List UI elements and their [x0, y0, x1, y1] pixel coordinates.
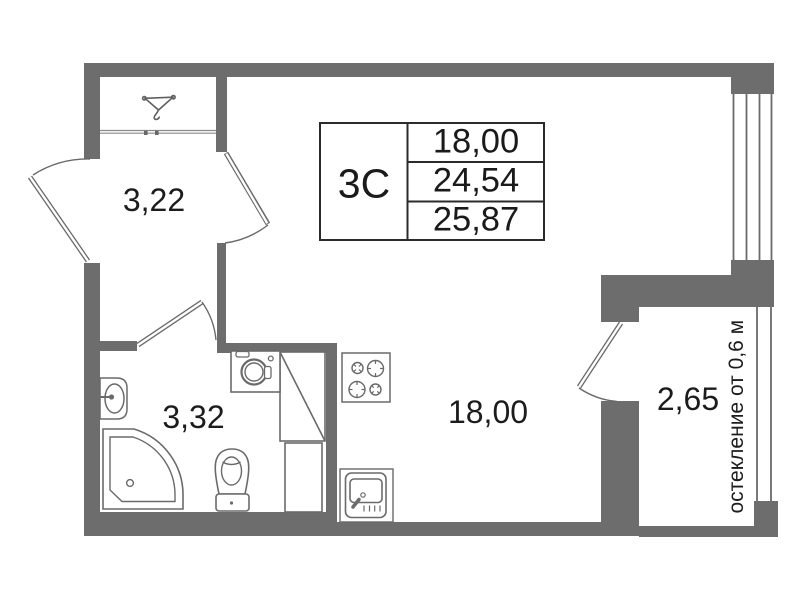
svg-text:3,22: 3,22 — [123, 182, 185, 218]
svg-text:2,65: 2,65 — [657, 381, 719, 417]
svg-text:18,00: 18,00 — [448, 394, 528, 430]
svg-text:24,54: 24,54 — [433, 162, 519, 200]
svg-text:25,87: 25,87 — [433, 201, 519, 239]
svg-text:3,32: 3,32 — [162, 399, 224, 435]
svg-text:остекление от 0,6 м: остекление от 0,6 м — [725, 320, 748, 514]
svg-text:18,00: 18,00 — [433, 123, 519, 161]
svg-text:3С: 3С — [338, 161, 390, 207]
